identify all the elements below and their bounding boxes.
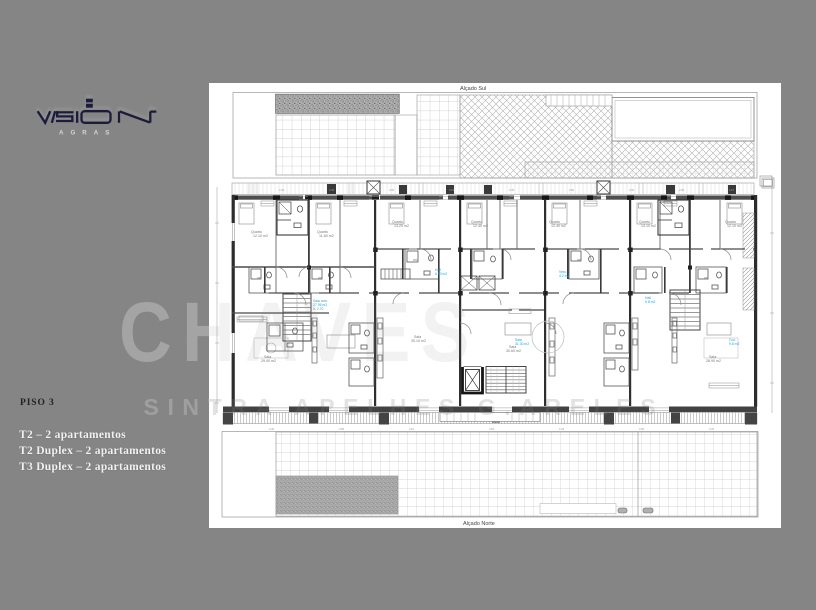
- svg-text:3.85: 3.85: [339, 427, 345, 431]
- svg-text:9.8 m2: 9.8 m2: [729, 342, 739, 346]
- svg-text:4.2 m2: 4.2 m2: [559, 274, 569, 278]
- svg-text:Alçado Norte: Alçado Norte: [463, 521, 495, 527]
- svg-text:wc: wc: [257, 276, 262, 280]
- svg-text:Alçado Sul: Alçado Sul: [460, 86, 486, 92]
- svg-text:4.25: 4.25: [559, 427, 565, 431]
- svg-text:12.40 m2: 12.40 m2: [551, 224, 566, 228]
- svg-text:6.10 m2: 6.10 m2: [435, 272, 447, 276]
- svg-text:wc: wc: [318, 276, 323, 280]
- svg-text:12.40 m2: 12.40 m2: [473, 224, 488, 228]
- svg-text:30.10 m2: 30.10 m2: [411, 339, 426, 343]
- svg-text:5.8 m2: 5.8 m2: [645, 300, 655, 304]
- svg-text:4.10: 4.10: [409, 427, 415, 431]
- svg-text:AGRAS: AGRAS: [59, 130, 116, 137]
- svg-text:13.10 m2: 13.10 m2: [641, 224, 656, 228]
- svg-text:3.90: 3.90: [639, 427, 645, 431]
- svg-text:12.10 m2: 12.10 m2: [253, 234, 268, 238]
- svg-text:31.30 m2: 31.30 m2: [515, 342, 529, 346]
- svg-text:11.60 m2: 11.60 m2: [319, 234, 334, 238]
- svg-text:30.60 m2: 30.60 m2: [506, 349, 521, 353]
- svg-text:2.30: 2.30: [279, 188, 285, 192]
- svg-text:4.30: 4.30: [269, 427, 275, 431]
- svg-text:29.40 m2: 29.40 m2: [261, 359, 276, 363]
- svg-text:12.10 m2: 12.10 m2: [727, 224, 742, 228]
- svg-text:4.05: 4.05: [709, 427, 715, 431]
- svg-text:13.20 m2: 13.20 m2: [394, 224, 409, 228]
- svg-text:3.45: 3.45: [509, 188, 515, 192]
- svg-text:2.90: 2.90: [389, 188, 395, 192]
- svg-text:3.60: 3.60: [489, 427, 495, 431]
- svg-text:2.95: 2.95: [679, 188, 685, 192]
- svg-text:3.10: 3.10: [449, 188, 455, 192]
- svg-text:3.30: 3.30: [629, 188, 635, 192]
- svg-text:wc: wc: [413, 258, 418, 262]
- svg-text:3.15: 3.15: [729, 188, 735, 192]
- svg-text:2.80: 2.80: [569, 188, 575, 192]
- svg-text:wc: wc: [577, 258, 582, 262]
- svg-text:wc: wc: [704, 276, 709, 280]
- svg-text:28.90 m2: 28.90 m2: [706, 359, 721, 363]
- svg-text:V. 2.70: V. 2.70: [313, 307, 324, 311]
- svg-text:3.45: 3.45: [329, 188, 335, 192]
